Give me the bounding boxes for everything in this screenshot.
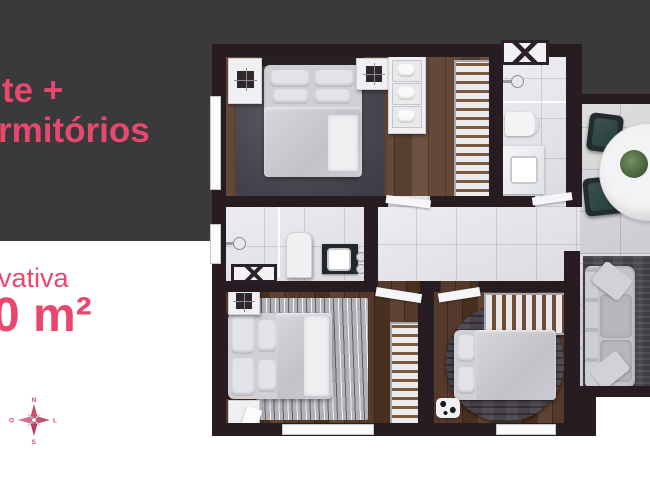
toilet-icon <box>505 112 539 136</box>
compass-north-label: N <box>32 397 37 404</box>
table-lamp-icon <box>366 66 382 82</box>
storage-cabinet <box>286 232 312 278</box>
wall-bathroom-dining <box>566 44 582 207</box>
pillow <box>457 335 475 362</box>
pillow <box>257 320 277 352</box>
wall-bathroom-hall <box>364 205 378 287</box>
sink-basin <box>510 156 538 184</box>
wall-bedroom-divider <box>418 292 434 424</box>
hallway-floor <box>376 205 580 285</box>
bedroom2-bed-runner <box>304 316 329 396</box>
shelf-cell <box>392 60 422 82</box>
ventilation-shaft <box>231 264 277 283</box>
shelf-cell <box>392 83 422 105</box>
shower-head-icon <box>233 237 246 250</box>
pillow <box>270 70 310 87</box>
zebra-pouf <box>436 398 460 418</box>
window-bathroom <box>210 224 221 264</box>
bedroom2-bed <box>228 313 332 399</box>
sink-basin <box>327 248 351 271</box>
laundry-counter <box>322 244 358 274</box>
sofa-cushion <box>600 294 632 338</box>
table-lamp-icon <box>237 71 254 88</box>
ventilation-shaft <box>501 40 549 65</box>
compass-east-label: L <box>53 418 57 425</box>
compass-icon: N L S O <box>8 394 60 446</box>
pillow <box>314 70 354 87</box>
window-bedroom3 <box>496 424 556 435</box>
headline-line1: te + <box>2 70 63 111</box>
window-bedroom2 <box>282 424 374 435</box>
bathroom-vanity <box>502 146 544 194</box>
compass-west-label: O <box>9 418 14 425</box>
pillow <box>272 89 309 104</box>
suite-shelf-unit <box>388 56 426 134</box>
floorplan-slide: te + rmitórios vativa 0 m² N L S O <box>0 0 650 480</box>
suite-nightstand-right <box>356 58 392 90</box>
headline-line2: rmitórios <box>0 110 150 151</box>
plant-icon <box>620 150 648 178</box>
wall-bathroom-bottom <box>501 196 535 207</box>
pillow <box>257 360 277 392</box>
table-lamp-icon <box>236 293 252 309</box>
shower-glass-partition <box>501 101 567 103</box>
suite-bed-throw <box>328 115 358 171</box>
background-top-right <box>580 0 650 96</box>
wall-closet-bathroom <box>489 44 503 207</box>
wall-living-bottom <box>578 386 650 397</box>
wall-suite-bottom <box>212 196 388 207</box>
suite-nightstand-left <box>228 58 262 104</box>
compass-south-label: S <box>32 439 37 446</box>
area-value: 0 m² <box>0 288 92 343</box>
pillow <box>231 358 255 396</box>
pillow <box>457 367 475 394</box>
shelf-cell <box>392 106 422 128</box>
shower-head-icon <box>511 75 524 88</box>
pillow <box>314 89 351 104</box>
wall-bedrooms-top <box>420 281 440 292</box>
wall-dining-top <box>578 94 650 104</box>
pillow <box>231 316 255 354</box>
window-suite <box>210 96 221 190</box>
bedroom3-bed-duvet <box>475 330 556 400</box>
sofa <box>585 266 635 388</box>
shower-glass-partition <box>278 206 280 278</box>
bedroom3-bed <box>454 330 556 400</box>
suite-bed <box>262 57 364 177</box>
